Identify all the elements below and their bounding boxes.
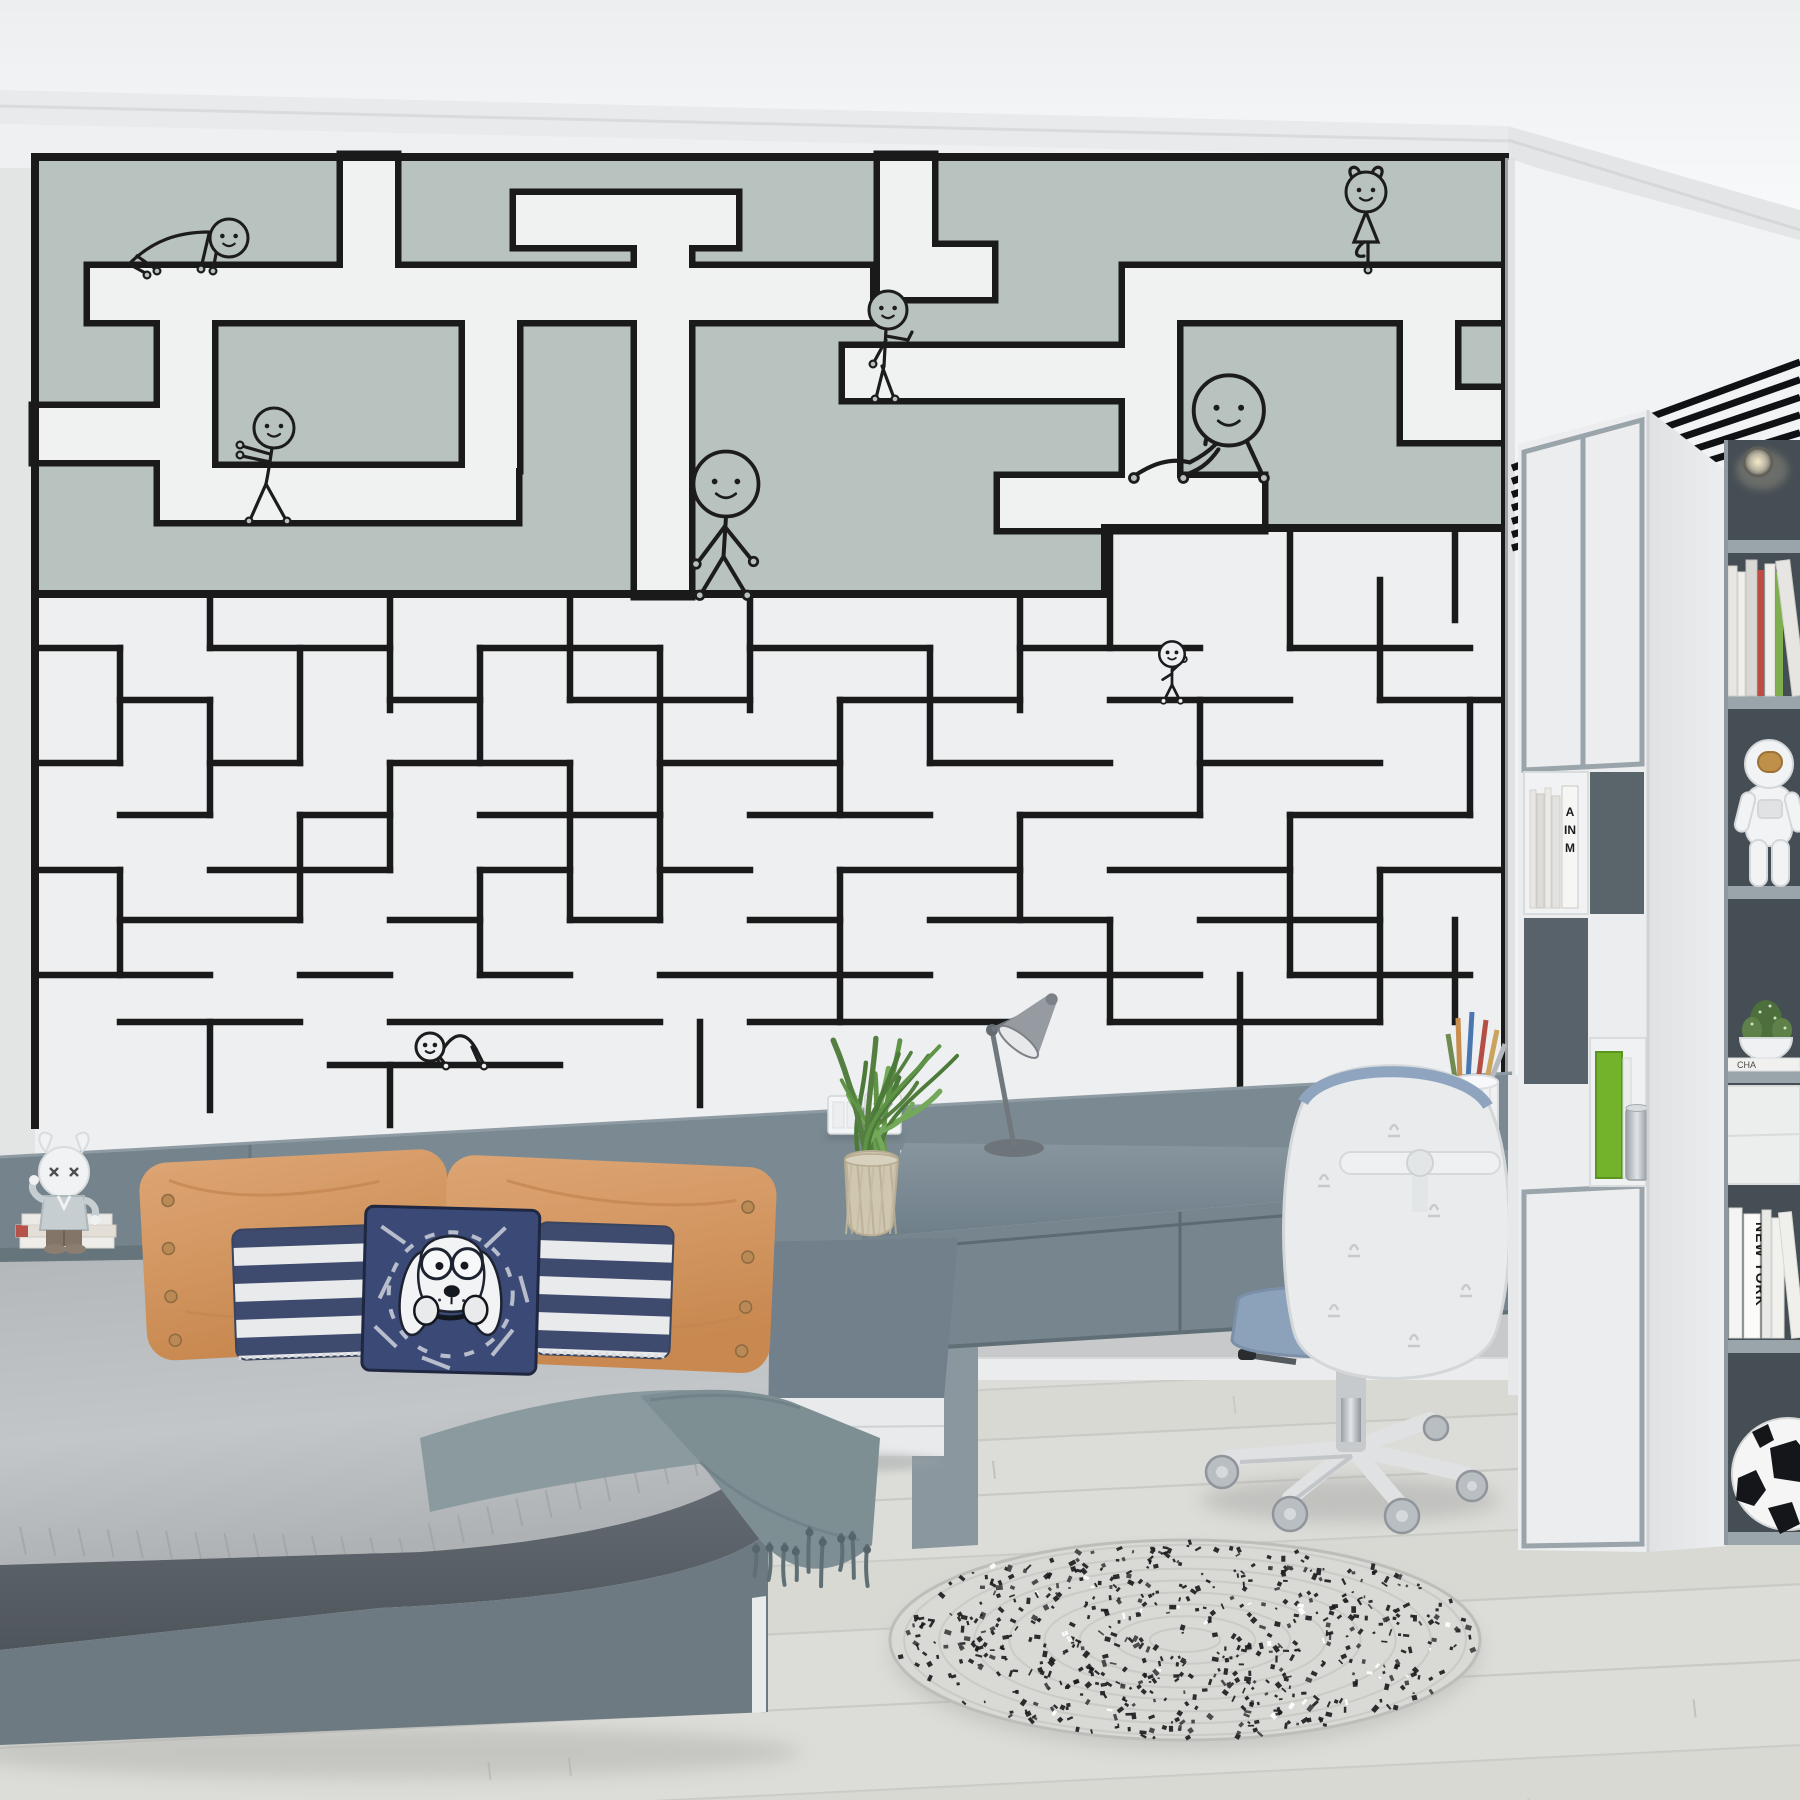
braided-round-rug [890,1539,1480,1750]
platform-corner-accent [752,1596,766,1713]
wardrobe-cubby-dark-1 [1590,772,1644,914]
chair-back [1284,1066,1510,1379]
wardrobe-side-panel [1648,410,1726,1552]
svg-text:M: M [1565,841,1575,855]
maze-wallpaper-mural [35,156,1505,1157]
pillow-dog [362,1206,540,1374]
maze-white-section [35,528,1505,1157]
metal-canister [1626,1105,1648,1181]
green-book [1596,1052,1622,1178]
wall-sliver-right [1508,1075,1518,1395]
wall-corner-shadow [1505,158,1515,1088]
wall-left-sliver [0,168,36,1228]
bedroom-photo: A IN M [0,0,1800,1800]
scene-canvas: A IN M [0,0,1800,1800]
wardrobe-cubby-dark-2 [1524,918,1588,1084]
svg-text:A: A [1566,805,1575,819]
bookcase: CHA NEW YORK [1726,440,1800,1545]
new-york-books: NEW YORK [1729,1208,1800,1338]
svg-text:CHA: CHA [1737,1060,1756,1070]
svg-text:IN: IN [1564,823,1576,837]
pillow-striped-right [533,1222,674,1359]
wardrobe: A IN M [1518,410,1726,1552]
cubby-book-row: A IN M [1530,786,1578,908]
recessed-spotlight [1744,448,1772,476]
